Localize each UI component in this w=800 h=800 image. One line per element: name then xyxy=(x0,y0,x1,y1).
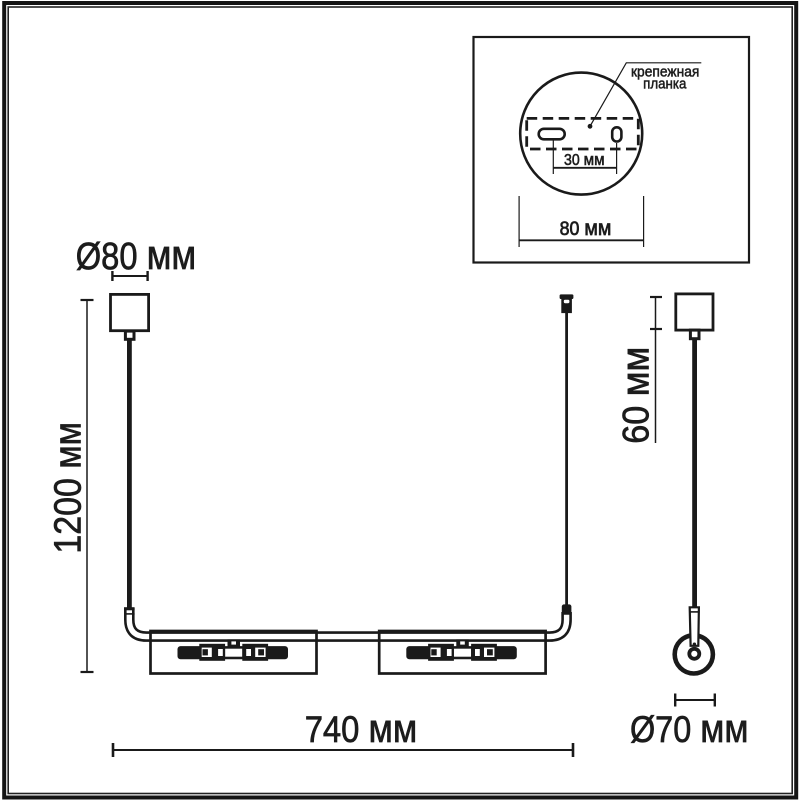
svg-text:Ø80 мм: Ø80 мм xyxy=(76,231,197,278)
svg-text:80 мм: 80 мм xyxy=(560,217,612,240)
svg-text:планка: планка xyxy=(643,77,687,93)
svg-text:60 мм: 60 мм xyxy=(615,347,658,444)
svg-text:Ø70 мм: Ø70 мм xyxy=(630,707,749,751)
svg-text:1200 мм: 1200 мм xyxy=(47,422,89,554)
svg-text:740 мм: 740 мм xyxy=(305,707,418,751)
svg-text:30 мм: 30 мм xyxy=(564,150,605,169)
